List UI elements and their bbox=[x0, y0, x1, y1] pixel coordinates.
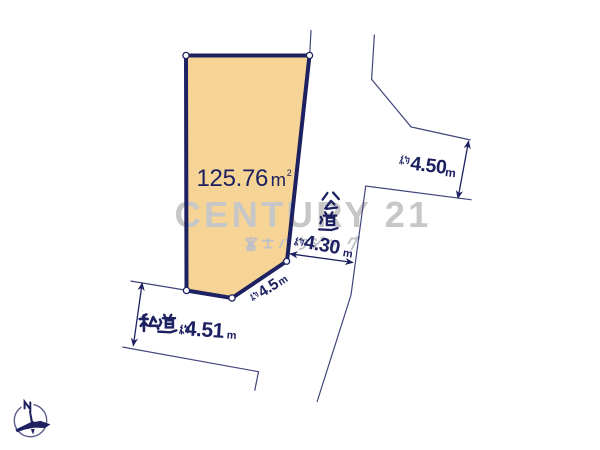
svg-text:CENTURY 21: CENTURY 21 bbox=[175, 194, 432, 235]
svg-text:m: m bbox=[226, 329, 237, 342]
svg-text:4.51: 4.51 bbox=[184, 317, 225, 343]
svg-text:125.76m2: 125.76m2 bbox=[197, 165, 292, 192]
svg-text:m: m bbox=[444, 165, 456, 180]
svg-text:4.50: 4.50 bbox=[409, 153, 448, 179]
